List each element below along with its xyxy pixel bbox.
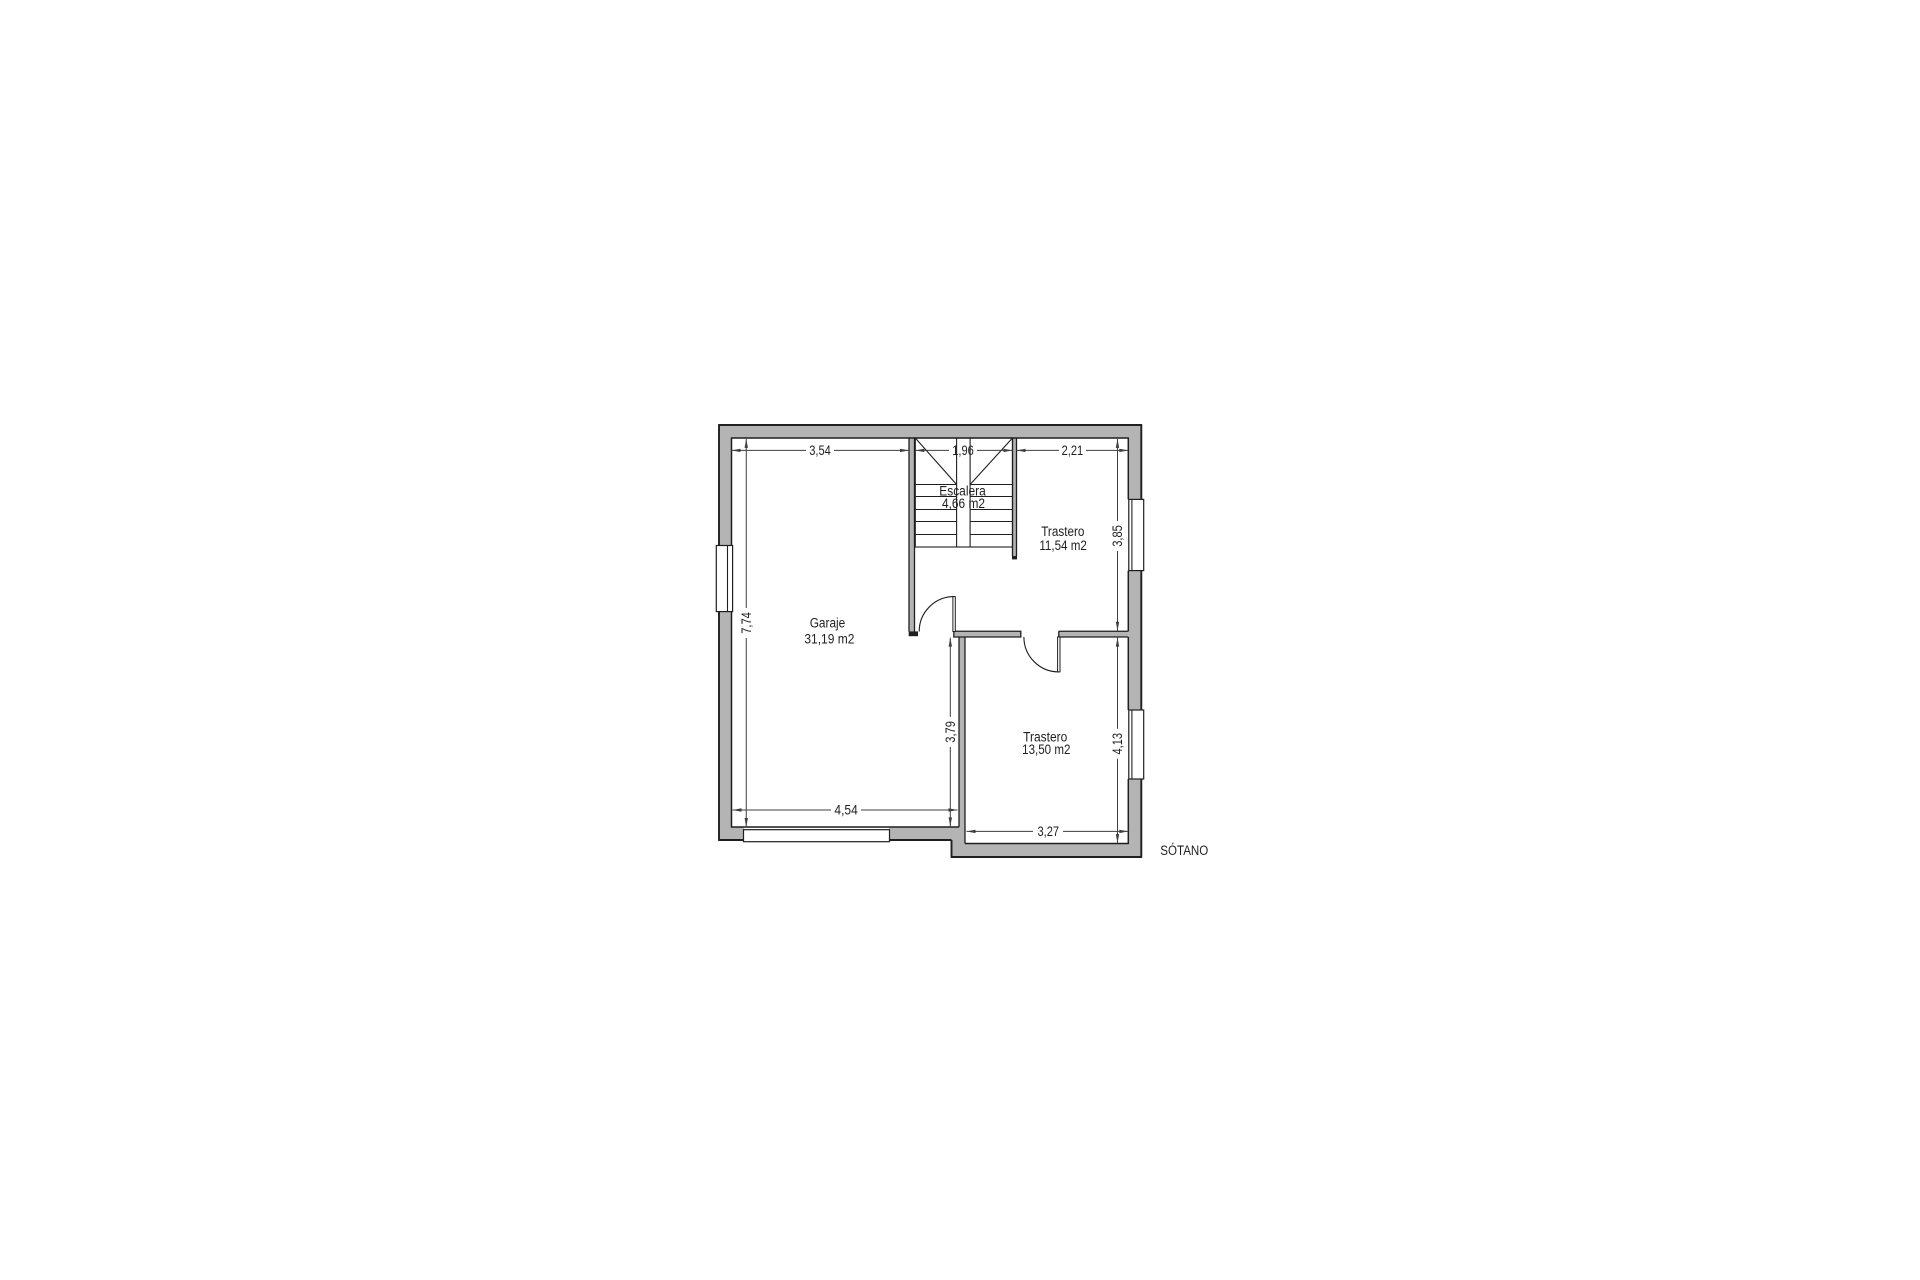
svg-text:SÓTANO: SÓTANO xyxy=(1160,843,1208,858)
svg-text:3,27: 3,27 xyxy=(1038,824,1060,839)
svg-text:13,50 m2: 13,50 m2 xyxy=(1022,742,1070,757)
svg-text:11,54 m2: 11,54 m2 xyxy=(1039,538,1087,553)
svg-text:3,79: 3,79 xyxy=(943,721,958,743)
svg-text:4,13: 4,13 xyxy=(1110,733,1125,755)
svg-text:31,19 m2: 31,19 m2 xyxy=(804,632,854,647)
svg-text:3,85: 3,85 xyxy=(1110,525,1125,547)
svg-text:7,74: 7,74 xyxy=(739,612,754,634)
svg-text:4,66 m2: 4,66 m2 xyxy=(942,496,985,511)
svg-text:Garaje: Garaje xyxy=(810,616,846,631)
svg-text:2,21: 2,21 xyxy=(1062,443,1084,458)
svg-text:1,96: 1,96 xyxy=(952,443,974,458)
svg-text:4,54: 4,54 xyxy=(834,803,858,818)
svg-text:Trastero: Trastero xyxy=(1041,524,1084,539)
svg-text:3,54: 3,54 xyxy=(809,443,831,458)
